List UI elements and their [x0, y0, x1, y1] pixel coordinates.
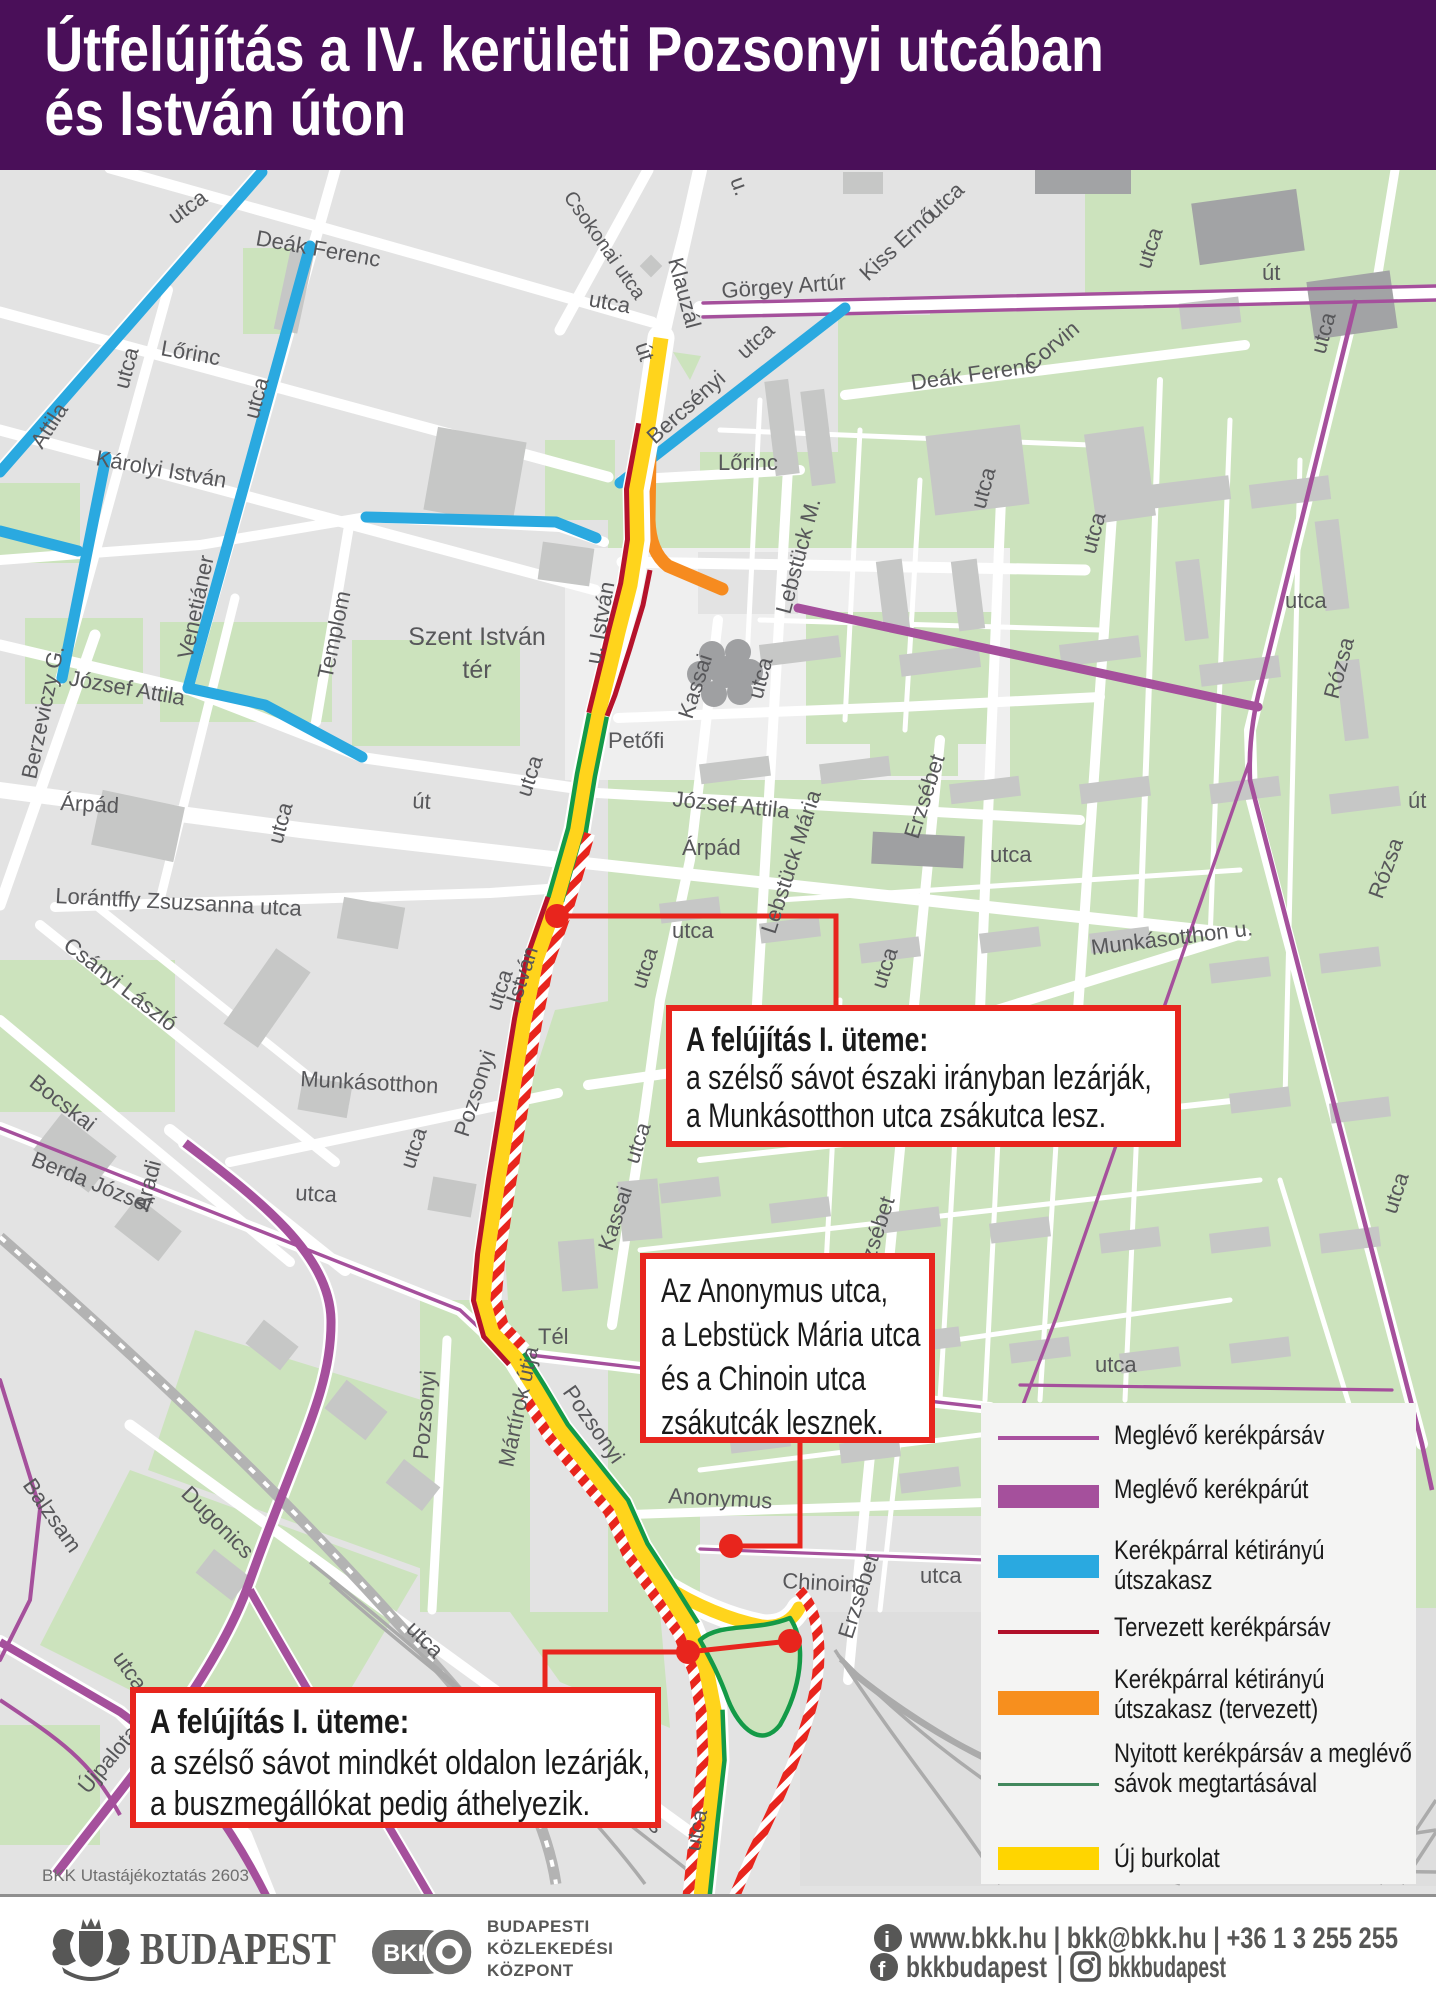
svg-text:út: út — [1262, 260, 1280, 285]
svg-text:i: i — [884, 1927, 890, 1952]
svg-text:KÖZLEKEDÉSI: KÖZLEKEDÉSI — [487, 1939, 613, 1958]
svg-text:BUDAPEST: BUDAPEST — [140, 1923, 336, 1974]
svg-text:Szent István: Szent István — [408, 623, 546, 651]
svg-text:utca: utca — [920, 1563, 962, 1588]
svg-text:f: f — [878, 1957, 886, 1982]
svg-text:Tél: Tél — [538, 1324, 569, 1349]
svg-text:tér: tér — [462, 656, 491, 684]
svg-text:utca: utca — [295, 1180, 339, 1207]
svg-text:út: út — [412, 788, 432, 814]
svg-text:Árpád: Árpád — [682, 835, 741, 860]
svg-text:BUDAPESTI: BUDAPESTI — [487, 1917, 590, 1936]
svg-text:Petőfi: Petőfi — [608, 728, 664, 753]
svg-text:KÖZPONT: KÖZPONT — [487, 1961, 574, 1980]
svg-text:utca: utca — [1095, 1352, 1137, 1377]
svg-text:BKK Utastájékoztatás 2603: BKK Utastájékoztatás 2603 — [42, 1866, 249, 1885]
svg-text:utca: utca — [990, 842, 1032, 867]
svg-text:bkkbudapest: bkkbudapest — [1108, 1951, 1226, 1984]
svg-text:utca: utca — [672, 918, 714, 943]
svg-text:út: út — [1408, 788, 1426, 813]
svg-text:bkkbudapest: bkkbudapest — [906, 1951, 1047, 1984]
svg-text:Árpád: Árpád — [60, 790, 120, 818]
svg-text:Lőrinc: Lőrinc — [718, 450, 778, 475]
svg-text:utca: utca — [1285, 588, 1327, 613]
svg-text:|: | — [1056, 1951, 1064, 1984]
